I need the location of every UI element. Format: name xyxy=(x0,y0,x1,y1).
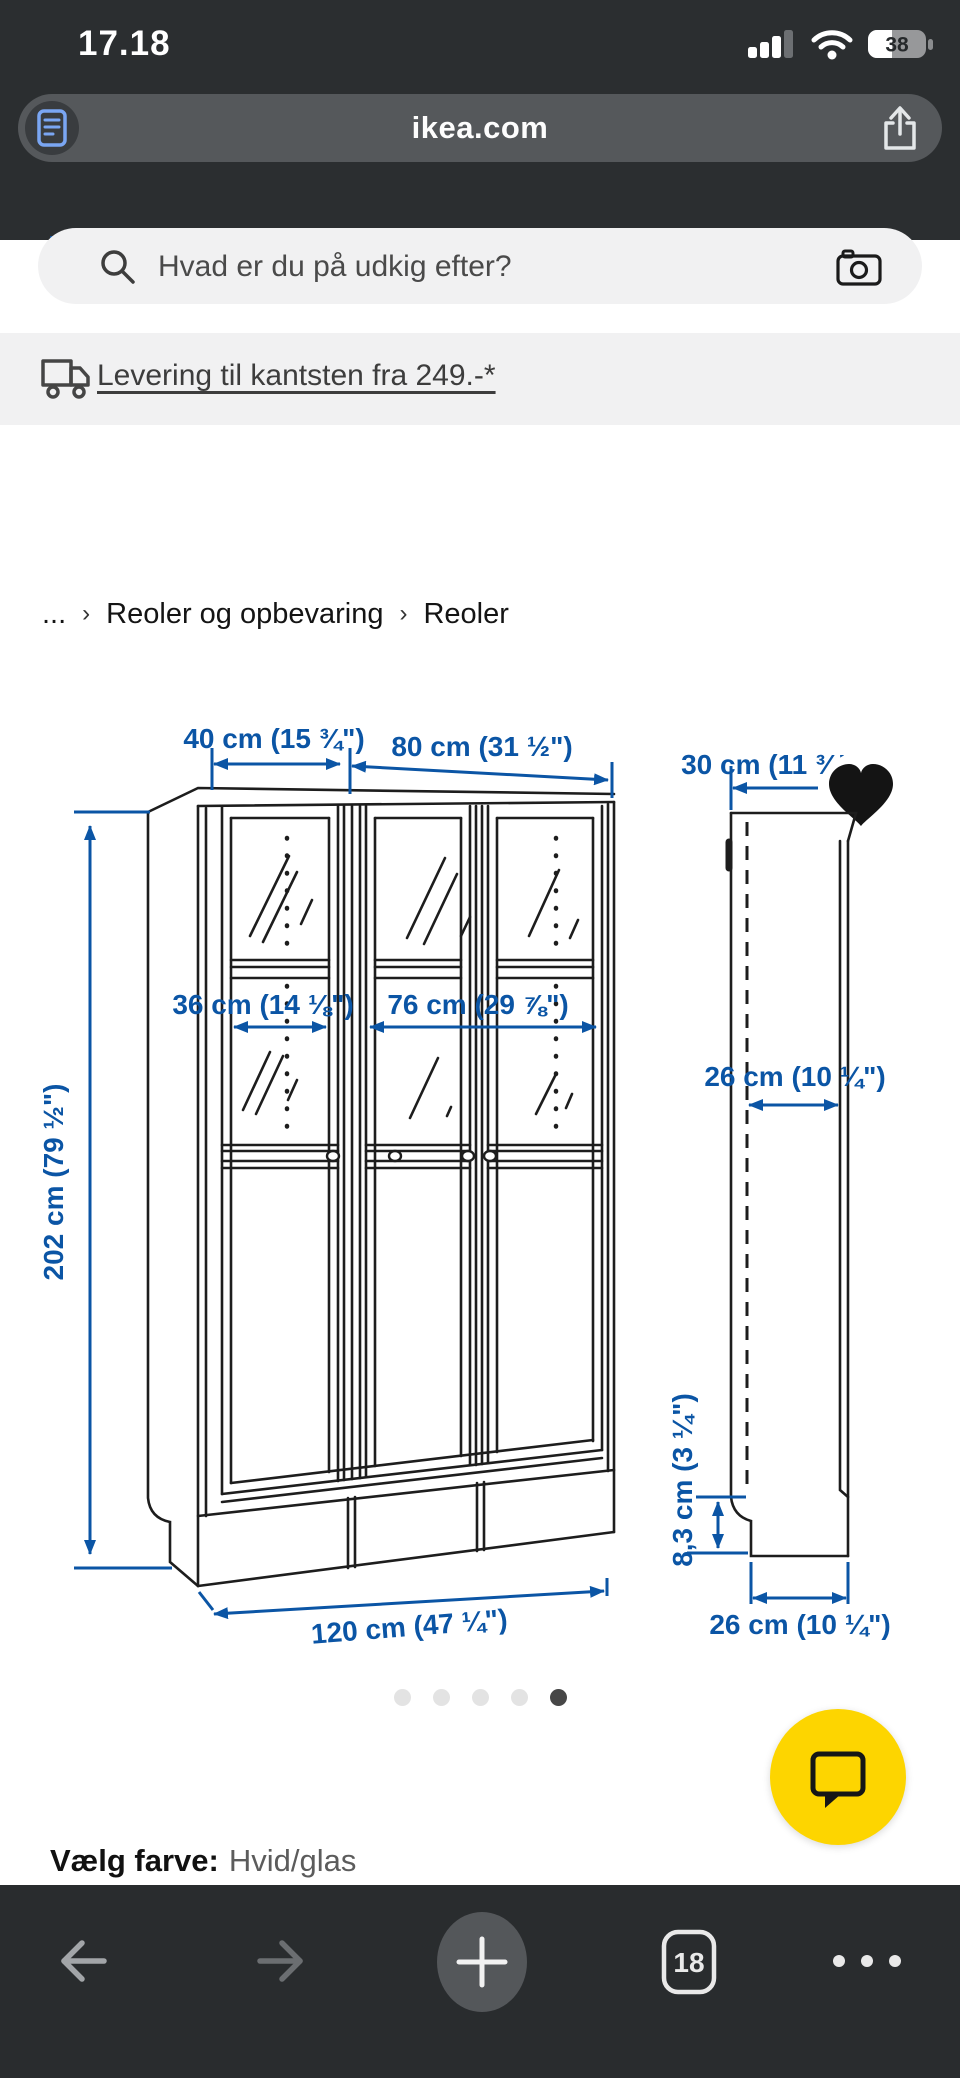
dim-height-202: 202 cm (79 ½") xyxy=(38,1084,69,1281)
chat-bubble-icon xyxy=(805,1744,871,1810)
dim-depth-26-bottom: 26 cm (10 ¼") xyxy=(709,1609,890,1640)
breadcrumb-item-subcategory[interactable]: Reoler xyxy=(423,598,508,631)
more-button[interactable] xyxy=(830,1953,904,1969)
dim-width-76: 76 cm (29 ⅞") xyxy=(387,989,568,1020)
camera-search-icon[interactable] xyxy=(836,248,882,286)
search-bar[interactable] xyxy=(38,228,922,304)
status-icons: 38 xyxy=(748,28,934,60)
dim-plinth-83: 8,3 cm (3 ¼") xyxy=(667,1393,698,1567)
carousel-dot-active[interactable] xyxy=(550,1689,567,1706)
forward-button[interactable] xyxy=(254,1937,310,1985)
breadcrumb-separator: › xyxy=(82,600,90,628)
browser-chrome-top: 17.18 38 ikea.com xyxy=(0,0,960,240)
dim-width-120: 120 cm (47 ¼") xyxy=(310,1603,509,1649)
carousel-dots xyxy=(0,1689,960,1706)
cellular-signal-icon xyxy=(748,30,796,58)
phone-screen: 17.18 38 ikea.com xyxy=(0,0,960,2078)
share-icon xyxy=(880,104,920,152)
color-selector-value: Hvid/glas xyxy=(229,1843,357,1878)
wifi-icon xyxy=(810,28,854,60)
url-bar[interactable]: ikea.com xyxy=(18,94,942,162)
back-button[interactable] xyxy=(54,1937,110,1985)
search-input[interactable] xyxy=(156,228,780,306)
product-dimension-image: 40 cm (15 ¾") 80 cm (31 ½") 36 cm (14 ⅛"… xyxy=(0,690,960,1660)
breadcrumb-separator: › xyxy=(399,600,407,628)
new-tab-button[interactable] xyxy=(436,1911,528,2013)
carousel-dot[interactable] xyxy=(472,1689,489,1706)
dim-width-80: 80 cm (31 ½") xyxy=(391,731,572,762)
bookcase-front-view xyxy=(148,788,614,1586)
dimension-labels: 40 cm (15 ¾") 80 cm (31 ½") 36 cm (14 ⅛"… xyxy=(38,723,861,1650)
tab-count: 18 xyxy=(673,1947,704,1978)
chat-button[interactable] xyxy=(770,1709,906,1845)
carousel-dot[interactable] xyxy=(394,1689,411,1706)
tabs-button[interactable]: 18 xyxy=(660,1928,718,1996)
dim-depth-26: 26 cm (10 ¼") xyxy=(704,1061,885,1092)
dim-width-36: 36 cm (14 ⅛") xyxy=(172,989,353,1020)
color-selector[interactable]: Vælg farve:Hvid/glas xyxy=(50,1843,356,1879)
delivery-link[interactable]: Levering til kantsten fra 249.-* xyxy=(97,359,496,393)
dim-width-40: 40 cm (15 ¾") xyxy=(183,723,364,754)
reader-button[interactable] xyxy=(25,101,79,155)
status-time: 17.18 xyxy=(78,24,171,64)
url-domain[interactable]: ikea.com xyxy=(18,94,942,162)
breadcrumb-collapsed[interactable]: ... xyxy=(42,598,66,631)
color-selector-label: Vælg farve: xyxy=(50,1843,219,1878)
delivery-banner: Levering til kantsten fra 249.-* xyxy=(0,333,960,425)
delivery-truck-icon xyxy=(40,355,92,401)
carousel-dot[interactable] xyxy=(433,1689,450,1706)
browser-toolbar: 18 xyxy=(0,1885,960,2078)
breadcrumb-item-category[interactable]: Reoler og opbevaring xyxy=(106,598,383,631)
search-icon xyxy=(100,249,136,285)
share-button[interactable] xyxy=(876,104,924,152)
battery-percent: 38 xyxy=(885,34,909,57)
battery-icon: 38 xyxy=(868,29,934,59)
breadcrumb: ... › Reoler og opbevaring › Reoler xyxy=(42,598,509,631)
carousel-dot[interactable] xyxy=(511,1689,528,1706)
side-dimension-lines xyxy=(687,766,848,1604)
reader-icon xyxy=(37,109,67,147)
